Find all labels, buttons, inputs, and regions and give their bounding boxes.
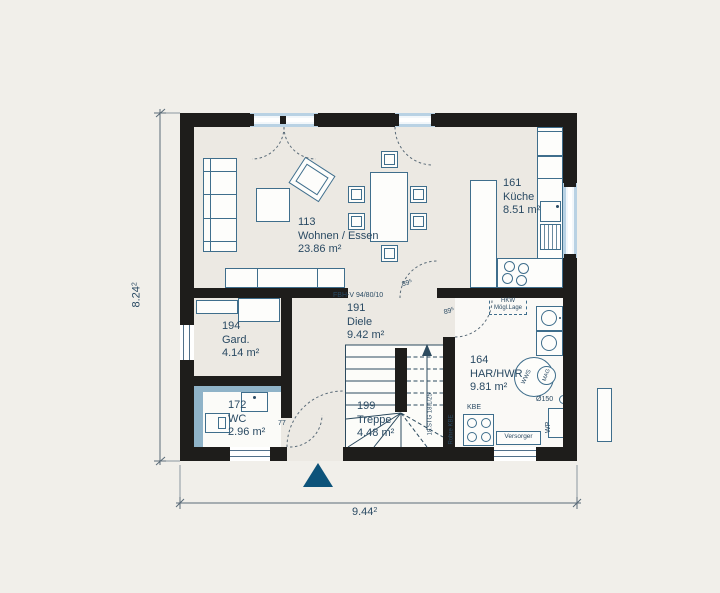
room-area: 4.14 m²: [222, 347, 259, 361]
vent-label: Ø150: [536, 396, 553, 404]
stair-treads-lower: [346, 357, 395, 405]
room-name: Diele: [347, 316, 384, 330]
room-number: 164: [470, 354, 523, 368]
room-name: Wohnen / Essen: [298, 230, 379, 244]
dimension-line-left: [154, 109, 166, 465]
dimension-height-label: 8.242: [131, 282, 146, 307]
room-label-har-hwr: 164 HAR/HWR 9.81 m²: [470, 354, 523, 395]
room-label-gard: 194 Gard. 4.14 m²: [222, 320, 259, 361]
door-swing-arc: [290, 415, 322, 447]
wc-door-width-label: 77: [278, 420, 286, 428]
door-swing-arc: [284, 127, 316, 159]
room-area: 9.42 m²: [347, 329, 384, 343]
stair-treads-upper: [401, 357, 443, 447]
entrance-marker: [303, 463, 333, 487]
exterior-element: [597, 388, 612, 442]
room-number: 172: [228, 399, 265, 413]
room-label-wc: 172 WC 2.96 m²: [228, 399, 265, 440]
room-area: 8.51 m²: [503, 204, 540, 218]
room-label-treppe: 199 Treppe 4.48 m²: [357, 400, 394, 441]
hkw-label: HKW Mögl.Lage: [489, 298, 527, 311]
floor-heating-note: FBH-V 94/80/10: [333, 292, 383, 300]
room-name: WC: [228, 413, 265, 427]
room-name: HAR/HWR: [470, 368, 523, 382]
room-area: 23.86 m²: [298, 243, 379, 257]
room-name: Treppe: [357, 414, 394, 428]
rohre-kbe-label: Rohre KBE: [449, 414, 456, 444]
floorplan-canvas: 113 Wohnen / Essen 23.86 m² 161 Küche 8.…: [0, 0, 720, 593]
kbe-label: KBE: [467, 404, 481, 412]
door-swing-arc: [455, 300, 492, 337]
door-swing-arc: [252, 127, 284, 159]
door-swing-arc: [395, 127, 433, 165]
room-name: Küche: [503, 191, 540, 205]
dimension-width-label: 9.442: [352, 506, 377, 521]
wp-label: WP: [545, 422, 553, 433]
room-number: 199: [357, 400, 394, 414]
stair-note-label: 18.STG 18.1/25: [428, 393, 435, 435]
room-number: 161: [503, 177, 540, 191]
room-label-wohnen-essen: 113 Wohnen / Essen 23.86 m²: [298, 216, 379, 257]
room-area: 2.96 m²: [228, 426, 265, 440]
room-label-diele: 191 Diele 9.42 m²: [347, 302, 384, 343]
room-number: 191: [347, 302, 384, 316]
room-name: Gard.: [222, 334, 259, 348]
versorger-label: Versorger: [496, 434, 541, 441]
room-number: 113: [298, 216, 379, 230]
stair-direction-arrowhead: [422, 344, 432, 356]
dimension-line-bottom: [176, 497, 581, 509]
room-area: 4.48 m²: [357, 427, 394, 441]
room-number: 194: [222, 320, 259, 334]
door-swing-arc: [287, 391, 343, 447]
room-label-kueche: 161 Küche 8.51 m²: [503, 177, 540, 218]
room-area: 9.81 m²: [470, 381, 523, 395]
